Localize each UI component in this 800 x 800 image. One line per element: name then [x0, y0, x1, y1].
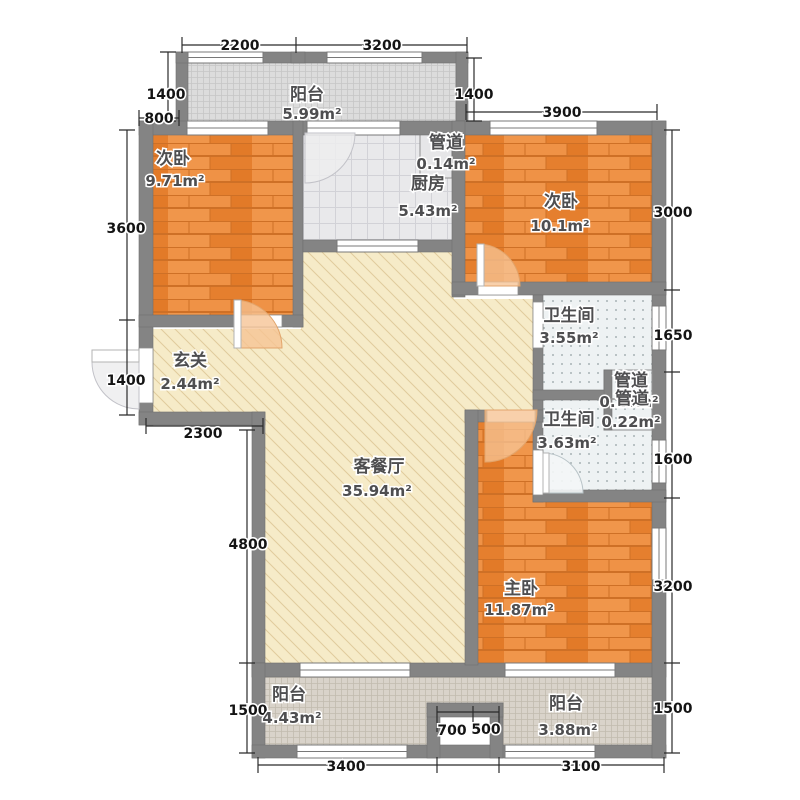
window-master-east [652, 528, 666, 580]
window-bedroom-left-north [187, 121, 268, 135]
dim-bottom-left-w: 3400 [327, 759, 366, 775]
window-balcony-br-south [505, 745, 595, 758]
wall-balcony-mid-pillar [291, 52, 305, 63]
dim-entry-w: 2300 [184, 426, 223, 442]
living-name: 客餐厅 [353, 456, 405, 477]
wall-notch-top [427, 703, 503, 717]
balcony-top-name: 阳台 [290, 84, 324, 105]
bedroom-left-name: 次卧 [156, 148, 190, 169]
balcony-top-area: 5.99m² [282, 105, 341, 123]
dim-living-left-h: 4800 [229, 537, 268, 553]
duct-upper-name: 管道 [614, 370, 648, 391]
dim-bedroom-right-w: 3900 [543, 105, 582, 121]
living-area: 35.94m² [342, 482, 412, 500]
opening-bath-lower [533, 450, 543, 495]
entry-name: 玄关 [173, 350, 207, 371]
entry-area: 2.44m² [160, 375, 219, 393]
bath-lower-name: 卫生间 [544, 409, 595, 430]
dim-notch-right-w: 500 [471, 722, 500, 738]
dim-right-bedroom-h: 3000 [654, 205, 693, 221]
dim-balcony-right-h: 1400 [455, 87, 494, 103]
bedroom-left-door-leaf [234, 300, 241, 348]
dim-right-bath-upper-h: 1650 [654, 328, 693, 344]
dim-left-offset: 800 [144, 111, 173, 127]
window-living-south [300, 663, 410, 677]
bedroom-right-door-leaf [477, 244, 484, 286]
master-name: 主卧 [504, 578, 538, 599]
kitchen-area: 5.43m² [398, 202, 457, 220]
dim-notch-left-w: 700 [437, 723, 466, 739]
balcony-bl-area: 4.43m² [262, 709, 321, 727]
duct-lower-area: 0.22m² [601, 413, 660, 431]
master-area: 11.87m² [484, 601, 554, 619]
dim-right-bath-lower-h: 1600 [654, 452, 693, 468]
dim-balcony-left-h: 1400 [147, 87, 186, 103]
kitchen-name: 厨房 [411, 173, 445, 194]
balcony-br-name: 阳台 [549, 693, 583, 714]
bedroom-left-area: 9.71m² [145, 172, 204, 190]
dim-bedroom-left-h: 3600 [107, 221, 146, 237]
window-balcony-bl-south [297, 745, 407, 758]
bath-upper-area: 3.55m² [539, 329, 598, 347]
dim-bottom-right-w: 3100 [562, 759, 601, 775]
dim-entry-left-h: 1400 [107, 373, 146, 389]
dim-top-left: 2200 [221, 38, 260, 54]
balcony-bl-name: 阳台 [272, 684, 306, 705]
dim-right-master-h: 3200 [654, 579, 693, 595]
bedroom-right-name: 次卧 [544, 191, 578, 212]
wall-master-west [465, 410, 478, 665]
duct-kitchen-area: 0.14m² [416, 155, 475, 173]
window-master-south [505, 663, 615, 677]
dim-right-balcony-h: 1500 [654, 701, 693, 717]
bath-upper-name: 卫生间 [544, 305, 595, 326]
bath-lower-door-leaf [543, 453, 549, 493]
window-kitchen-pass [337, 240, 418, 252]
wall-bedroom-left-east [293, 121, 303, 327]
wall-entry-bottom [139, 412, 265, 425]
dim-top-right: 3200 [363, 38, 402, 54]
floor-plan: 2200 3200 1400 800 3900 1400 3600 1400 2… [0, 0, 800, 800]
balcony-br-area: 3.88m² [538, 721, 597, 739]
room-fills [150, 60, 654, 758]
bedroom-right-area: 10.1m² [530, 217, 589, 235]
window-bedroom-right-north [490, 121, 597, 135]
entry-door-leaf [92, 350, 139, 362]
duct-lower-name: 管道 [615, 388, 649, 409]
floor-plan-canvas: 2200 3200 1400 800 3900 1400 3600 1400 2… [0, 0, 800, 800]
duct-kitchen-name: 管道 [429, 132, 463, 153]
bath-lower-area: 3.63m² [537, 434, 596, 452]
